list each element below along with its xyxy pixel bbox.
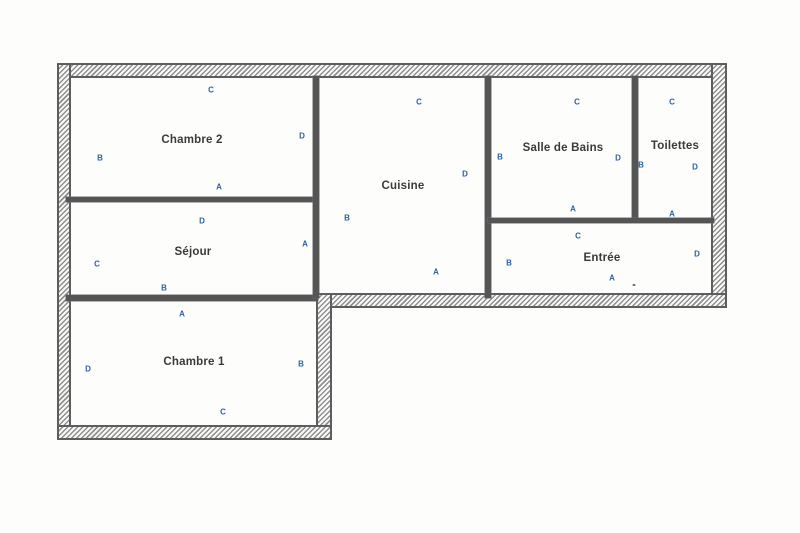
exterior-wall-upper-section-bottom xyxy=(316,293,727,308)
exterior-wall-extension-right xyxy=(316,293,332,440)
wall-letter-d-entree: D xyxy=(694,250,700,259)
interior-wall-sdb-toilettes-divider xyxy=(632,76,638,222)
wall-letter-b-toilettes: B xyxy=(638,161,644,170)
exterior-wall-outer-left xyxy=(57,63,71,440)
wall-letter-a-sejour: A xyxy=(302,240,308,249)
wall-letter-b-salle-de-bains: B xyxy=(497,153,503,162)
room-label-cuisine: Cuisine xyxy=(382,180,425,192)
stray-scan-mark xyxy=(633,284,636,286)
wall-letter-b-cuisine: B xyxy=(344,214,350,223)
wall-letter-b-chambre-1: B xyxy=(298,360,304,369)
interior-wall-entree-top-wall xyxy=(488,218,714,223)
wall-letter-c-entree: C xyxy=(575,232,581,241)
wall-letter-d-cuisine: D xyxy=(462,170,468,179)
room-label-entree: Entrée xyxy=(584,252,621,264)
interior-wall-cuisine-left-wall xyxy=(313,76,319,298)
wall-letter-c-chambre-1: C xyxy=(220,408,226,417)
room-label-chambre-1: Chambre 1 xyxy=(163,356,224,368)
room-label-toilettes: Toilettes xyxy=(651,140,699,152)
exterior-wall-extension-bottom xyxy=(57,425,332,440)
floor-plan: Chambre 2CDBASéjourDACBChambre 1ADBCCuis… xyxy=(0,0,800,533)
exterior-wall-outer-right xyxy=(711,63,727,308)
wall-letter-b-entree: B xyxy=(506,259,512,268)
wall-letter-c-sejour: C xyxy=(94,260,100,269)
wall-letter-c-cuisine: C xyxy=(416,98,422,107)
wall-letter-a-entree: A xyxy=(609,274,615,283)
wall-letter-c-salle-de-bains: C xyxy=(574,98,580,107)
wall-letter-d-sejour: D xyxy=(199,217,205,226)
room-label-salle-de-bains: Salle de Bains xyxy=(523,142,604,154)
wall-letter-a-toilettes: A xyxy=(669,210,675,219)
room-label-chambre-2: Chambre 2 xyxy=(161,134,222,146)
wall-letter-d-salle-de-bains: D xyxy=(615,154,621,163)
wall-letter-c-toilettes: C xyxy=(669,98,675,107)
interior-wall-cuisine-right-wall xyxy=(485,76,491,298)
wall-letter-b-sejour: B xyxy=(161,284,167,293)
interior-wall-sejour-chambre1-divider xyxy=(66,295,318,301)
wall-letter-d-chambre-1: D xyxy=(85,365,91,374)
wall-letter-a-chambre-2: A xyxy=(216,183,222,192)
wall-letter-b-chambre-2: B xyxy=(97,154,103,163)
wall-letter-d-chambre-2: D xyxy=(299,132,305,141)
wall-letter-d-toilettes: D xyxy=(692,163,698,172)
exterior-wall-outer-top xyxy=(57,63,727,78)
wall-letter-a-chambre-1: A xyxy=(179,310,185,319)
room-label-sejour: Séjour xyxy=(175,246,212,258)
wall-letter-a-cuisine: A xyxy=(433,268,439,277)
interior-wall-chambre2-sejour-divider xyxy=(66,197,318,202)
wall-letter-c-chambre-2: C xyxy=(208,86,214,95)
wall-letter-a-salle-de-bains: A xyxy=(570,205,576,214)
